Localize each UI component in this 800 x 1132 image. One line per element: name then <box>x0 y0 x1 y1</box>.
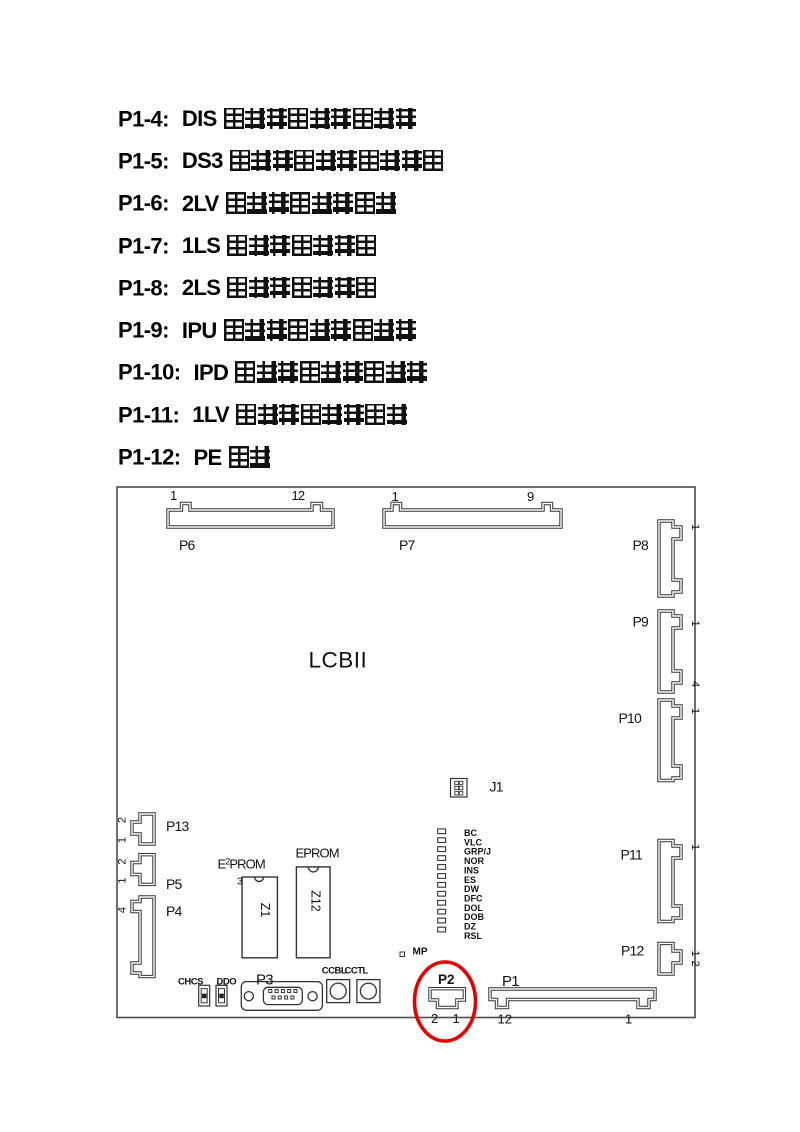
svg-text:P5: P5 <box>166 876 183 892</box>
svg-text:1: 1 <box>392 489 399 504</box>
svg-text:12: 12 <box>292 488 305 503</box>
svg-text:MP: MP <box>413 947 428 958</box>
svg-text:P12: P12 <box>621 943 645 959</box>
svg-text:P1: P1 <box>502 973 519 990</box>
svg-text:CHCS: CHCS <box>178 977 203 988</box>
svg-text:3: 3 <box>237 876 243 888</box>
svg-text:P4: P4 <box>166 903 183 919</box>
svg-text:P2: P2 <box>438 972 455 987</box>
svg-text:4: 4 <box>689 681 701 687</box>
svg-text:Z1: Z1 <box>258 903 272 918</box>
svg-text:2: 2 <box>431 1011 438 1026</box>
svg-text:1: 1 <box>170 488 177 503</box>
svg-text:P9: P9 <box>633 614 650 630</box>
svg-text:Z12: Z12 <box>309 890 323 912</box>
svg-text:RSL: RSL <box>464 931 483 941</box>
svg-text:1: 1 <box>117 877 129 883</box>
svg-text:1: 1 <box>689 708 701 714</box>
svg-text:2: 2 <box>117 858 129 864</box>
svg-text:1: 1 <box>625 1012 632 1027</box>
svg-text:9: 9 <box>527 489 534 504</box>
svg-text:P8: P8 <box>633 537 650 553</box>
svg-text:P11: P11 <box>621 847 643 863</box>
svg-text:1: 1 <box>689 950 701 956</box>
svg-text:2: 2 <box>689 960 701 966</box>
svg-text:LCBII: LCBII <box>309 648 368 673</box>
svg-text:CCTL: CCTL <box>345 966 369 977</box>
svg-text:1: 1 <box>117 837 129 843</box>
svg-text:DDO: DDO <box>217 977 237 988</box>
svg-text:1: 1 <box>689 524 701 530</box>
svg-text:EPROM: EPROM <box>296 846 339 861</box>
svg-text:P3: P3 <box>256 972 273 989</box>
svg-text:P7: P7 <box>399 537 416 553</box>
svg-text:1: 1 <box>453 1011 460 1026</box>
svg-text:P13: P13 <box>166 818 190 834</box>
svg-text:E2PROM: E2PROM <box>218 857 265 872</box>
svg-text:12: 12 <box>498 1012 512 1027</box>
svg-text:P6: P6 <box>179 537 196 553</box>
svg-text:1: 1 <box>689 620 701 626</box>
svg-text:J1: J1 <box>490 779 504 795</box>
svg-text:P10: P10 <box>619 710 643 726</box>
svg-text:CCBL: CCBL <box>322 966 347 977</box>
svg-text:4: 4 <box>117 907 129 913</box>
svg-text:1: 1 <box>689 844 701 850</box>
svg-text:2: 2 <box>117 817 129 823</box>
